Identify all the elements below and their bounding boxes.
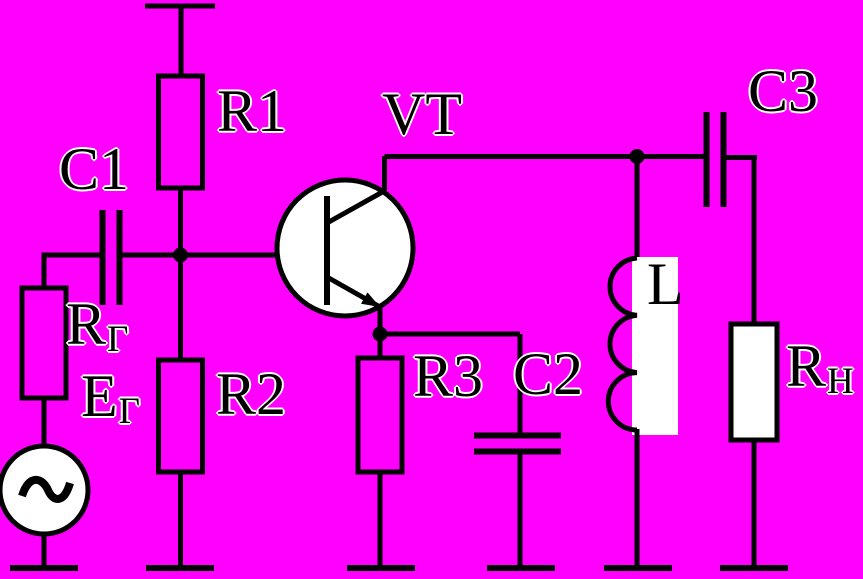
- label-l: L: [647, 254, 684, 314]
- label-r2: R2: [216, 364, 286, 424]
- c3-to-load-wire: [723, 158, 757, 327]
- transistor-circle: [277, 180, 413, 316]
- collector-wire: [385, 149, 645, 190]
- resistor-r2-body: [159, 360, 203, 472]
- label-c2: C2: [513, 344, 583, 404]
- circuit-diagram: C1 R1 VT C3 RГ ЕГ R2 R3 C2 L RН: [0, 0, 863, 579]
- label-r1: R1: [217, 81, 287, 141]
- resistor-r3-body: [358, 358, 402, 472]
- transistor-vt: [277, 180, 413, 316]
- resistor-rg: [22, 288, 66, 447]
- label-eg: ЕГ: [81, 366, 140, 430]
- base-node-junction: [173, 248, 188, 263]
- resistor-rn-body: [731, 324, 777, 440]
- supply-terminal: [145, 6, 215, 78]
- label-rn: RН: [786, 336, 854, 400]
- label-rg: RГ: [66, 294, 128, 358]
- resistor-r1: [159, 76, 203, 188]
- resistor-rn: [731, 324, 777, 568]
- resistor-r1-body: [159, 76, 203, 188]
- label-vt: VT: [382, 84, 462, 144]
- label-c3: C3: [748, 61, 818, 121]
- label-c1: C1: [59, 139, 129, 199]
- generator-to-c1-wire: [44, 255, 102, 290]
- resistor-r3: [358, 358, 402, 568]
- resistor-rg-body: [22, 288, 66, 398]
- inductor-l: [608, 156, 678, 568]
- resistor-r2: [159, 360, 203, 568]
- label-r3: R3: [413, 346, 483, 406]
- ac-source-eg: [0, 446, 88, 568]
